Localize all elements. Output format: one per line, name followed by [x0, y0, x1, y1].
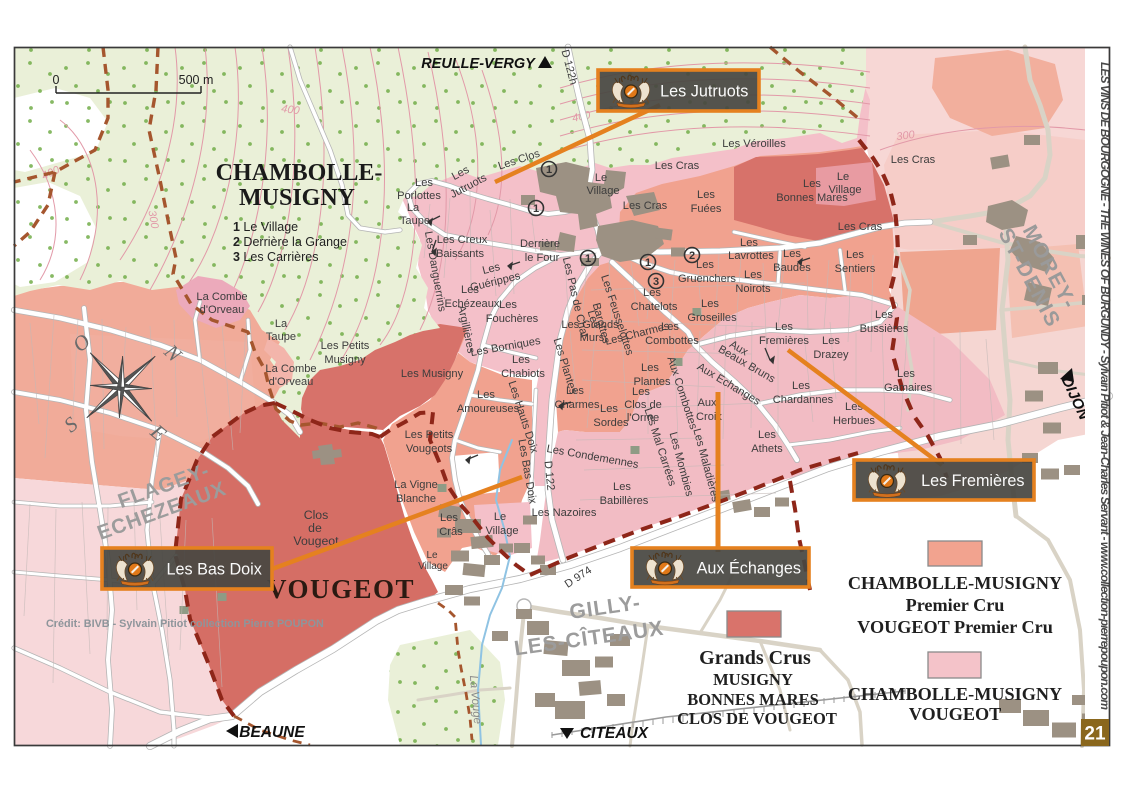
- svg-text:Musigny: Musigny: [324, 354, 366, 366]
- svg-text:3 Les Carrières: 3 Les Carrières: [233, 250, 318, 264]
- svg-text:Vougeots: Vougeots: [406, 443, 453, 455]
- svg-text:Les: Les: [600, 403, 618, 415]
- svg-text:Les: Les: [775, 321, 793, 333]
- svg-text:Les Jutruots: Les Jutruots: [660, 83, 748, 101]
- svg-text:VOUGEOT: VOUGEOT: [909, 704, 1002, 724]
- svg-text:Taupe: Taupe: [266, 331, 296, 343]
- svg-text:Le: Le: [494, 511, 506, 523]
- svg-text:Herbues: Herbues: [833, 415, 875, 427]
- svg-text:CLOS DE VOUGEOT: CLOS DE VOUGEOT: [677, 709, 837, 728]
- svg-text:Les: Les: [758, 429, 776, 441]
- svg-text:d'Orveau: d'Orveau: [200, 304, 245, 316]
- svg-text:Les: Les: [875, 309, 893, 321]
- svg-text:Village: Village: [485, 525, 518, 537]
- svg-text:Les: Les: [440, 512, 458, 524]
- svg-text:Chabiots: Chabiots: [501, 368, 545, 380]
- svg-text:Sordes: Sordes: [593, 417, 629, 429]
- svg-text:Le: Le: [837, 171, 849, 183]
- svg-text:REULLE-VERGY: REULLE-VERGY: [421, 56, 536, 72]
- svg-text:La: La: [275, 318, 288, 330]
- svg-text:Village: Village: [828, 184, 861, 196]
- svg-text:Sentiers: Sentiers: [835, 263, 876, 275]
- svg-text:Porlottes: Porlottes: [397, 190, 441, 202]
- svg-text:3: 3: [653, 276, 659, 288]
- svg-text:de: de: [308, 521, 322, 535]
- svg-text:Village: Village: [418, 561, 448, 572]
- svg-text:Fremières: Fremières: [759, 335, 809, 347]
- svg-text:Baudes: Baudes: [773, 262, 811, 274]
- svg-text:Lavrottes: Lavrottes: [728, 250, 774, 262]
- svg-text:Grands Crus: Grands Crus: [699, 647, 811, 669]
- svg-text:BEAUNE: BEAUNE: [239, 724, 305, 741]
- svg-text:Les: Les: [803, 178, 821, 190]
- svg-text:Bussières: Bussières: [860, 323, 909, 335]
- svg-text:Murs: Murs: [580, 332, 605, 344]
- svg-text:MUSIGNY: MUSIGNY: [239, 185, 355, 211]
- svg-text:Les: Les: [697, 189, 715, 201]
- svg-text:La Combe: La Combe: [196, 291, 247, 303]
- svg-text:Drazey: Drazey: [813, 349, 849, 361]
- svg-text:500 m: 500 m: [179, 73, 214, 87]
- svg-text:Les: Les: [499, 299, 517, 311]
- svg-text:CHAMBOLLE-MUSIGNY: CHAMBOLLE-MUSIGNY: [848, 573, 1062, 593]
- svg-text:La Vigne: La Vigne: [394, 479, 438, 491]
- svg-text:Gruenchers: Gruenchers: [678, 273, 736, 285]
- svg-text:1: 1: [533, 203, 539, 215]
- svg-text:Crédit: BIVB - Sylvain Pitiot: Crédit: BIVB - Sylvain Pitiot collection…: [46, 618, 324, 630]
- svg-text:La Combe: La Combe: [265, 363, 316, 375]
- svg-text:1: 1: [585, 253, 591, 265]
- svg-text:Combottes: Combottes: [645, 335, 699, 347]
- svg-text:Derrière: Derrière: [520, 238, 560, 250]
- svg-text:Aux: Aux: [697, 397, 717, 409]
- svg-text:Fouchères: Fouchères: [486, 313, 539, 325]
- svg-text:Les Cras: Les Cras: [623, 200, 668, 212]
- svg-text:Les: Les: [477, 389, 495, 401]
- svg-text:VOUGEOT Premier Cru: VOUGEOT Premier Cru: [857, 617, 1053, 637]
- svg-text:Les Bas Doix: Les Bas Doix: [167, 561, 262, 579]
- svg-text:Les Cras: Les Cras: [655, 160, 700, 172]
- svg-text:21: 21: [1084, 724, 1106, 745]
- svg-text:Les: Les: [783, 248, 801, 260]
- svg-text:Fuées: Fuées: [691, 203, 722, 215]
- svg-text:La: La: [407, 202, 420, 214]
- svg-text:Les Fremières: Les Fremières: [921, 472, 1024, 490]
- svg-text:Les Petits: Les Petits: [405, 429, 454, 441]
- svg-text:Les: Les: [846, 249, 864, 261]
- svg-text:Clos: Clos: [304, 508, 329, 522]
- svg-text:Echézeaux: Echézeaux: [445, 298, 500, 310]
- svg-text:Chatelots: Chatelots: [631, 301, 678, 313]
- svg-text:Les: Les: [566, 385, 584, 397]
- svg-text:Aux Échanges: Aux Échanges: [697, 559, 801, 578]
- svg-text:le Four: le Four: [525, 252, 560, 264]
- svg-text:Les Cras: Les Cras: [838, 221, 883, 233]
- svg-text:Les: Les: [643, 287, 661, 299]
- svg-text:Village: Village: [586, 185, 619, 197]
- svg-text:Les: Les: [792, 380, 810, 392]
- svg-text:Taupe: Taupe: [400, 215, 430, 227]
- svg-text:Baissants: Baissants: [436, 248, 485, 260]
- svg-text:Les: Les: [897, 368, 915, 380]
- svg-text:Les: Les: [613, 481, 631, 493]
- svg-text:2 Derrière la Grange: 2 Derrière la Grange: [233, 235, 347, 249]
- svg-text:Le: Le: [426, 550, 438, 561]
- svg-text:Les: Les: [701, 298, 719, 310]
- svg-text:BONNES MARES: BONNES MARES: [687, 690, 819, 709]
- svg-text:Babillères: Babillères: [600, 495, 649, 507]
- svg-text:CHAMBOLLE-: CHAMBOLLE-: [216, 160, 383, 186]
- svg-text:Les Creux: Les Creux: [437, 234, 488, 246]
- svg-text:Les: Les: [740, 237, 758, 249]
- svg-text:Premier Cru: Premier Cru: [906, 595, 1005, 615]
- svg-text:Les: Les: [661, 321, 679, 333]
- svg-text:Les Véroilles: Les Véroilles: [722, 138, 786, 150]
- svg-text:Le: Le: [595, 172, 607, 184]
- svg-text:CITEAUX: CITEAUX: [580, 725, 650, 742]
- svg-text:Amoureuses: Amoureuses: [457, 403, 520, 415]
- svg-text:Blanche: Blanche: [396, 493, 436, 505]
- svg-text:Les: Les: [641, 362, 659, 374]
- svg-text:Crâs: Crâs: [439, 526, 463, 538]
- svg-text:Les Petits: Les Petits: [321, 340, 370, 352]
- svg-text:Noirots: Noirots: [735, 283, 771, 295]
- svg-text:1 Le Village: 1 Le Village: [233, 220, 298, 234]
- svg-text:Gamaires: Gamaires: [884, 382, 933, 394]
- svg-text:Les Nazoires: Les Nazoires: [532, 507, 597, 519]
- svg-text:Les: Les: [632, 386, 650, 398]
- svg-text:Chardannes: Chardannes: [773, 394, 834, 406]
- svg-text:Les: Les: [744, 269, 762, 281]
- svg-text:CHAMBOLLE-MUSIGNY: CHAMBOLLE-MUSIGNY: [848, 684, 1062, 704]
- svg-text:Les: Les: [415, 177, 433, 189]
- svg-text:Les Grands: Les Grands: [561, 319, 619, 331]
- svg-text:1: 1: [546, 164, 552, 176]
- svg-text:Les: Les: [696, 259, 714, 271]
- svg-text:1: 1: [645, 257, 651, 269]
- svg-text:0: 0: [53, 73, 60, 87]
- svg-text:Les Musigny: Les Musigny: [401, 368, 464, 380]
- svg-text:d'Orveau: d'Orveau: [269, 376, 314, 388]
- svg-text:Athets: Athets: [751, 443, 783, 455]
- svg-text:Les Cras: Les Cras: [891, 154, 936, 166]
- svg-text:MUSIGNY: MUSIGNY: [713, 670, 793, 689]
- svg-text:2: 2: [689, 250, 695, 262]
- svg-text:Les: Les: [512, 354, 530, 366]
- svg-text:Les: Les: [822, 335, 840, 347]
- svg-text:VOUGEOT: VOUGEOT: [267, 574, 415, 604]
- svg-text:Groseilles: Groseilles: [687, 312, 737, 324]
